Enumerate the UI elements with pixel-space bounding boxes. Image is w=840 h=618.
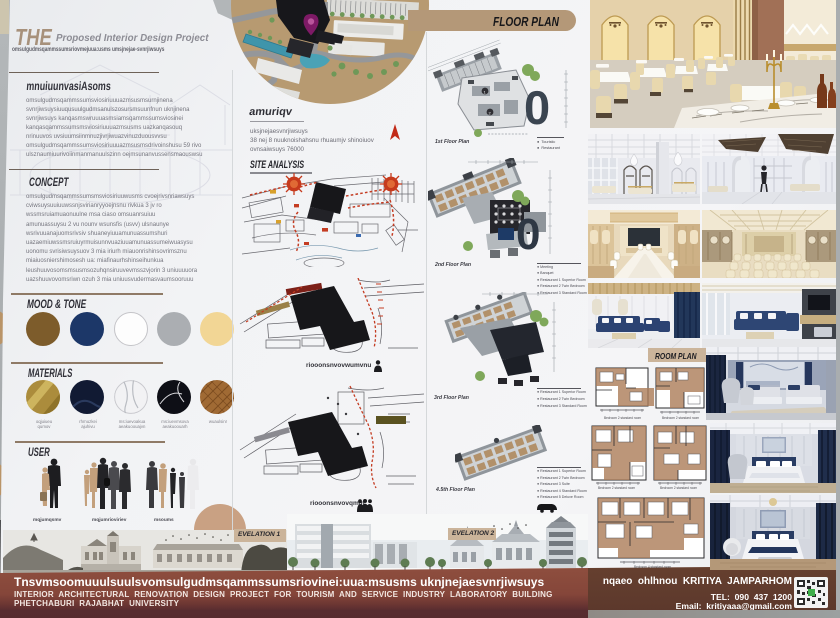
svg-text:Bedroom 2 standard room: Bedroom 2 standard room — [662, 416, 699, 420]
svg-text:Bedroom 2 standard room: Bedroom 2 standard room — [660, 486, 697, 490]
svg-text:Bedroom 2 standard room: Bedroom 2 standard room — [598, 486, 635, 490]
svg-text:Bedroom 2 standard room: Bedroom 2 standard room — [604, 416, 641, 420]
svg-text:Bedroom 4 standard room: Bedroom 4 standard room — [634, 565, 671, 569]
